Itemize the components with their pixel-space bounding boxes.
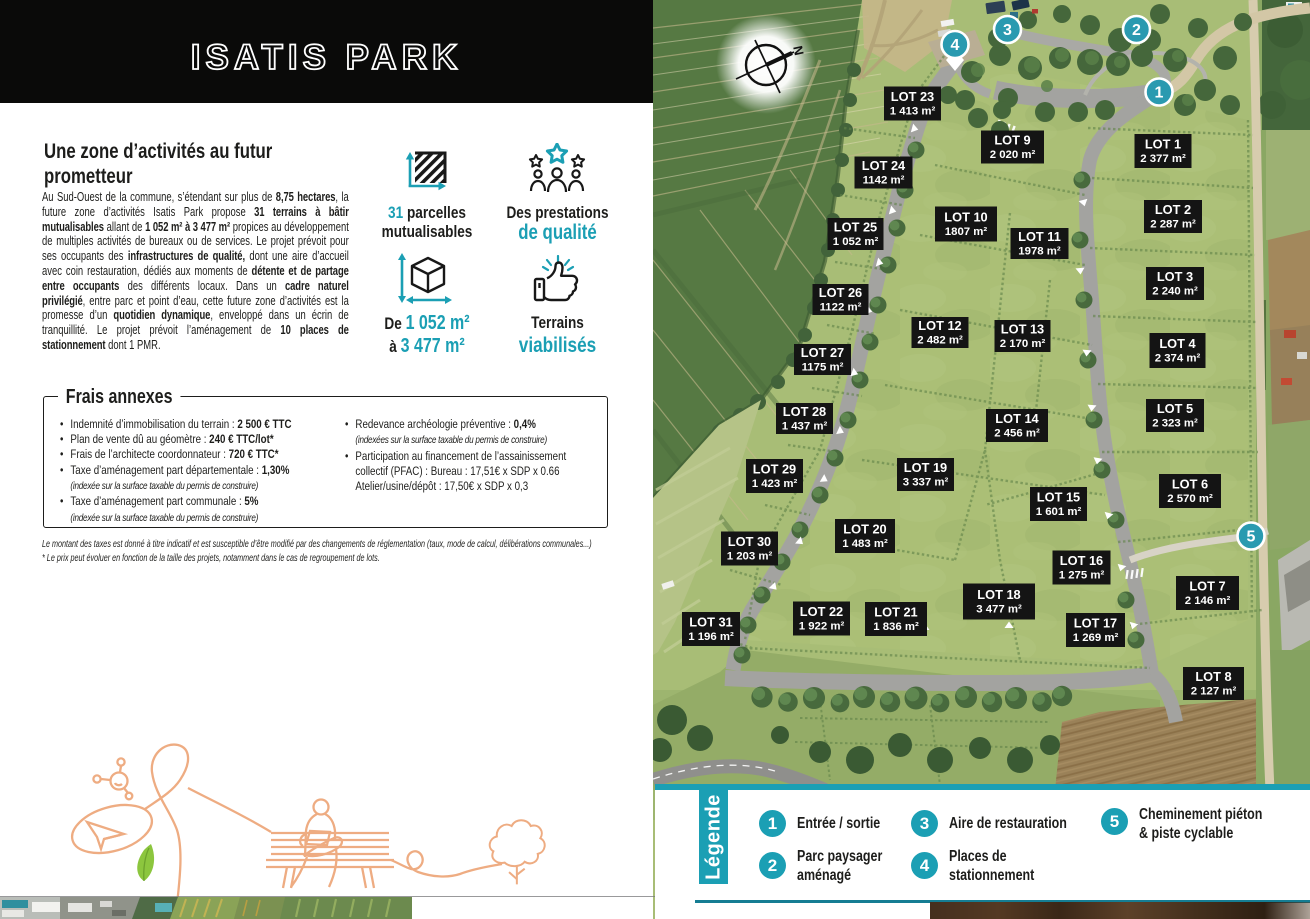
svg-text:LOT 6: LOT 6 xyxy=(1172,477,1208,492)
svg-text:LOT 4: LOT 4 xyxy=(1159,336,1196,351)
svg-text:LOT 15: LOT 15 xyxy=(1037,490,1080,505)
svg-text:4: 4 xyxy=(951,37,960,54)
svg-text:2 456 m²: 2 456 m² xyxy=(994,428,1040,440)
svg-text:LOT 27: LOT 27 xyxy=(801,345,844,360)
svg-text:2 240 m²: 2 240 m² xyxy=(1152,286,1198,298)
svg-text:LOT 8: LOT 8 xyxy=(1195,669,1231,684)
svg-text:1 836 m²: 1 836 m² xyxy=(873,621,919,633)
svg-text:1807 m²: 1807 m² xyxy=(945,226,988,238)
svg-text:1 423 m²: 1 423 m² xyxy=(752,478,798,490)
svg-text:LOT 23: LOT 23 xyxy=(891,89,934,104)
svg-text:LOT 3: LOT 3 xyxy=(1157,269,1193,284)
svg-text:1122 m²: 1122 m² xyxy=(820,302,862,314)
svg-text:3 477 m²: 3 477 m² xyxy=(976,604,1022,616)
svg-text:2 146 m²: 2 146 m² xyxy=(1185,595,1231,607)
svg-text:LOT 16: LOT 16 xyxy=(1060,553,1103,568)
svg-text:1 203 m²: 1 203 m² xyxy=(727,551,773,563)
svg-text:3: 3 xyxy=(1003,22,1012,39)
svg-text:LOT 7: LOT 7 xyxy=(1189,579,1225,594)
svg-text:2 020 m²: 2 020 m² xyxy=(990,149,1036,161)
svg-text:LOT 14: LOT 14 xyxy=(995,411,1039,426)
svg-text:LOT 12: LOT 12 xyxy=(918,318,961,333)
svg-text:1 275 m²: 1 275 m² xyxy=(1059,570,1105,582)
svg-text:3 337 m²: 3 337 m² xyxy=(903,477,949,489)
svg-text:LOT 25: LOT 25 xyxy=(834,220,877,235)
svg-text:1 483 m²: 1 483 m² xyxy=(842,538,888,550)
svg-text:1 922 m²: 1 922 m² xyxy=(799,621,845,633)
svg-text:2 374 m²: 2 374 m² xyxy=(1155,353,1201,365)
svg-text:2 127 m²: 2 127 m² xyxy=(1191,686,1237,698)
svg-text:LOT 1: LOT 1 xyxy=(1145,137,1181,152)
svg-text:LOT 19: LOT 19 xyxy=(904,460,947,475)
svg-text:LOT 24: LOT 24 xyxy=(862,158,906,173)
svg-text:5: 5 xyxy=(1247,529,1256,546)
svg-text:LOT 22: LOT 22 xyxy=(800,604,843,619)
svg-text:LOT 30: LOT 30 xyxy=(728,534,771,549)
svg-text:LOT 18: LOT 18 xyxy=(977,587,1020,602)
svg-text:1 052 m²: 1 052 m² xyxy=(833,236,879,248)
svg-text:1142 m²: 1142 m² xyxy=(863,175,905,187)
svg-text:LOT 31: LOT 31 xyxy=(689,615,732,630)
svg-text:LOT 17: LOT 17 xyxy=(1074,616,1117,631)
svg-text:LOT 26: LOT 26 xyxy=(819,285,862,300)
svg-text:1 437 m²: 1 437 m² xyxy=(782,421,828,433)
svg-text:1 601 m²: 1 601 m² xyxy=(1036,506,1082,518)
svg-text:1 413 m²: 1 413 m² xyxy=(890,106,936,118)
svg-text:1 269 m²: 1 269 m² xyxy=(1073,632,1119,644)
svg-text:LOT 10: LOT 10 xyxy=(944,210,987,225)
svg-text:2: 2 xyxy=(1132,22,1141,39)
svg-text:LOT 11: LOT 11 xyxy=(1018,229,1061,244)
svg-text:LOT 20: LOT 20 xyxy=(843,522,886,537)
svg-text:2 287 m²: 2 287 m² xyxy=(1150,219,1196,231)
svg-text:LOT 13: LOT 13 xyxy=(1001,322,1044,337)
svg-text:2 482 m²: 2 482 m² xyxy=(917,335,963,347)
svg-text:1 196 m²: 1 196 m² xyxy=(688,631,734,643)
svg-text:LOT 28: LOT 28 xyxy=(783,404,826,419)
svg-text:LOT 2: LOT 2 xyxy=(1155,202,1191,217)
svg-text:LOT 5: LOT 5 xyxy=(1157,401,1193,416)
svg-text:1175 m²: 1175 m² xyxy=(802,362,844,374)
svg-text:1978 m²: 1978 m² xyxy=(1018,246,1061,258)
svg-text:LOT 29: LOT 29 xyxy=(753,462,796,477)
svg-text:2 377 m²: 2 377 m² xyxy=(1140,153,1186,165)
svg-text:2 170 m²: 2 170 m² xyxy=(1000,338,1046,350)
svg-text:LOT 9: LOT 9 xyxy=(994,133,1030,148)
svg-text:LOT 21: LOT 21 xyxy=(874,605,917,620)
svg-text:1: 1 xyxy=(1155,85,1164,102)
svg-text:2 323 m²: 2 323 m² xyxy=(1152,418,1198,430)
svg-text:2 570 m²: 2 570 m² xyxy=(1167,493,1213,505)
